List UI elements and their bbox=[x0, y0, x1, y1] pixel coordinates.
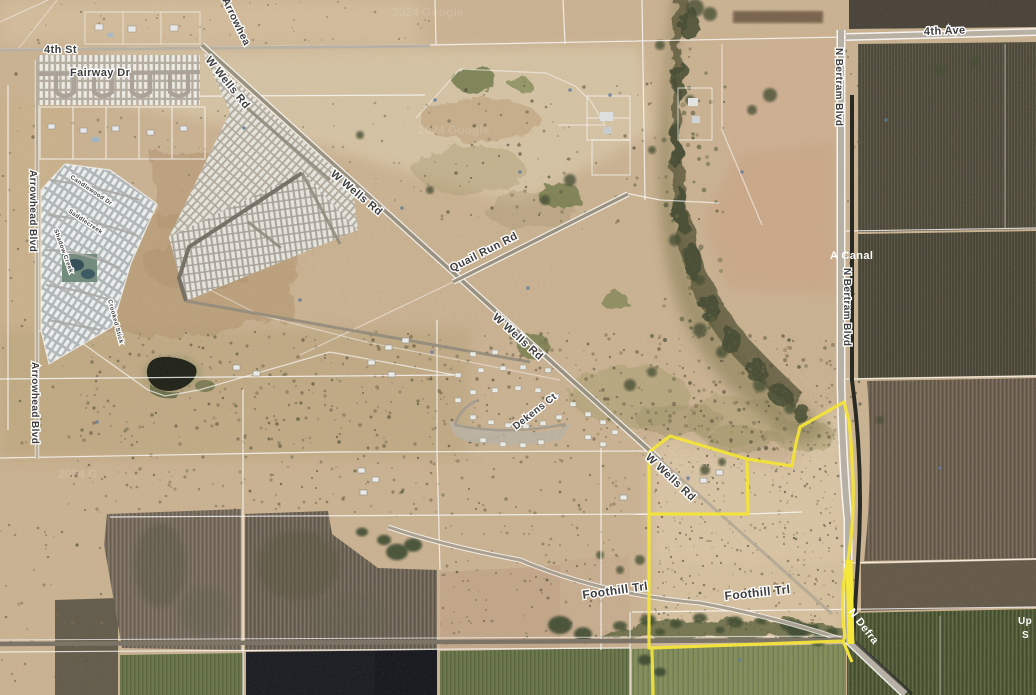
svg-text:4th St: 4th St bbox=[44, 44, 77, 56]
svg-text:Arrowhead Blvd: Arrowhead Blvd bbox=[27, 170, 38, 252]
svg-text:N Bertram Blvd: N Bertram Blvd bbox=[841, 268, 852, 346]
svg-text:N Bertram Blvd: N Bertram Blvd bbox=[833, 48, 844, 126]
svg-text:A Canal: A Canal bbox=[830, 250, 873, 262]
svg-text:S: S bbox=[1022, 630, 1029, 641]
svg-text:Up: Up bbox=[1018, 616, 1032, 627]
svg-text:Fairway Dr: Fairway Dr bbox=[70, 67, 131, 79]
svg-text:Arrowhead Blvd: Arrowhead Blvd bbox=[29, 362, 40, 444]
svg-text:4th Ave: 4th Ave bbox=[924, 25, 966, 38]
